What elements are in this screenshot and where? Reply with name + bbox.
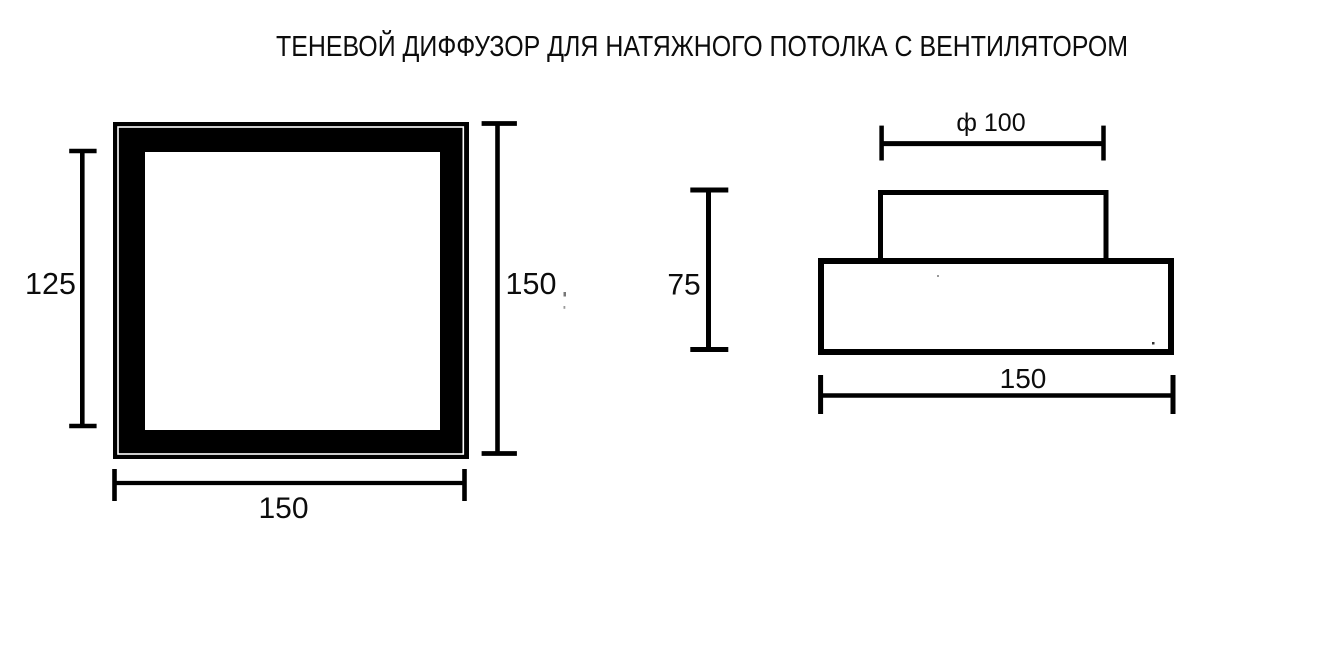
svg-text:ф 100: ф 100 [956,109,1025,137]
svg-text:150: 150 [1000,363,1047,394]
svg-text:125: 125 [25,267,76,301]
svg-text:150: 150 [506,267,557,301]
svg-text:75: 75 [667,269,700,302]
svg-text:ТЕНЕВОЙ ДИФФУЗОР ДЛЯ НАТЯЖНОГО: ТЕНЕВОЙ ДИФФУЗОР ДЛЯ НАТЯЖНОГО ПОТОЛКА С… [276,31,1128,63]
svg-text:150: 150 [258,492,308,525]
